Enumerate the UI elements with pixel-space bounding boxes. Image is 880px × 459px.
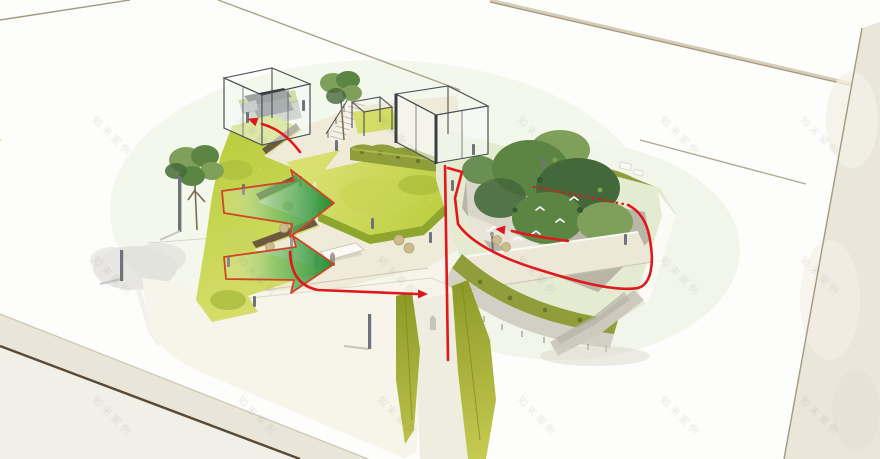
site-illustration [0, 0, 880, 459]
landscape-axonometric-rendering: 知末案例知末案例知末案例知末案例知末案例知末案例知末案例知末案例知末案例知末案例… [0, 0, 880, 459]
light-pole [178, 176, 181, 232]
